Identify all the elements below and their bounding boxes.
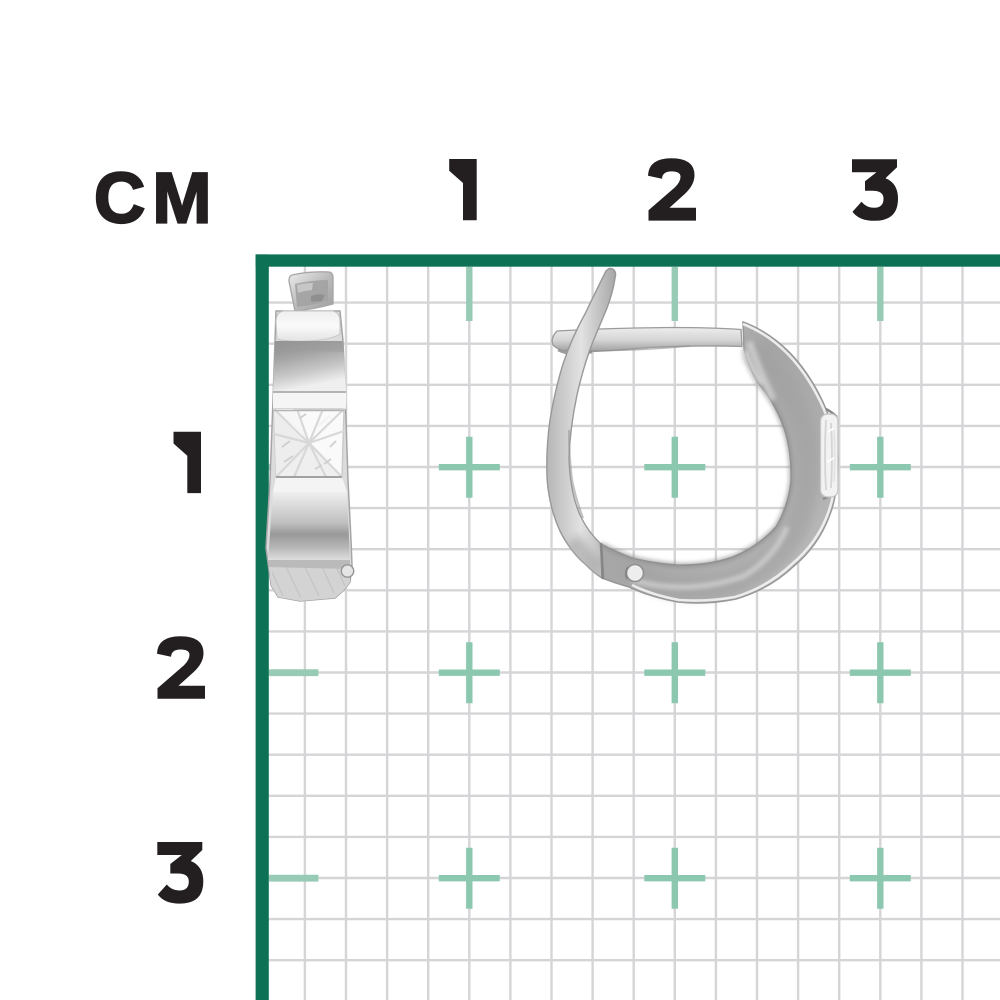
svg-text:СМ: СМ — [94, 160, 219, 239]
